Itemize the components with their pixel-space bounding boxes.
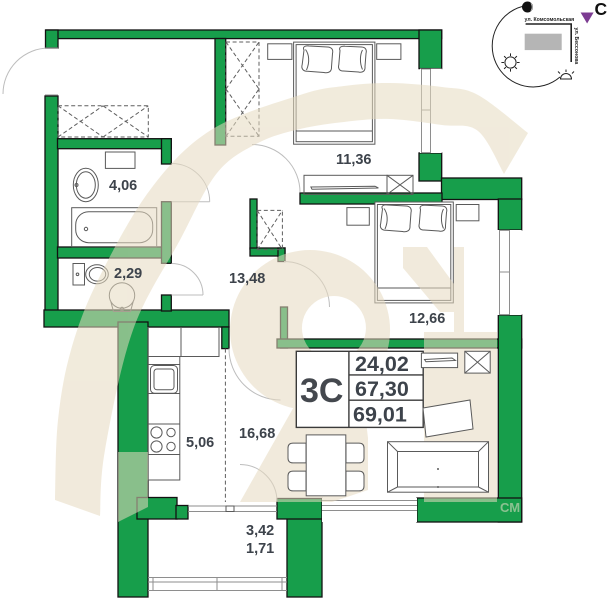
svg-text:13,48: 13,48	[229, 271, 265, 287]
svg-text:ул. Комсомольская: ул. Комсомольская	[525, 17, 575, 23]
svg-text:12,66: 12,66	[409, 311, 445, 327]
svg-text:67,30: 67,30	[355, 377, 409, 401]
svg-text:16,68: 16,68	[239, 426, 275, 442]
svg-text:69,01: 69,01	[353, 403, 407, 427]
svg-text:24,02: 24,02	[355, 352, 409, 376]
svg-text:1,71: 1,71	[246, 541, 274, 557]
svg-text:СМ: СМ	[500, 500, 520, 515]
svg-text:4,06: 4,06	[109, 178, 137, 194]
svg-text:2,29: 2,29	[114, 266, 142, 282]
svg-text:3С: 3С	[300, 372, 343, 410]
svg-text:5,06: 5,06	[186, 435, 214, 451]
svg-text:ул. Бессонова: ул. Бессонова	[573, 28, 579, 65]
svg-text:3,42: 3,42	[246, 523, 274, 539]
svg-text:11,36: 11,36	[336, 152, 372, 168]
svg-text:С: С	[595, 0, 607, 19]
